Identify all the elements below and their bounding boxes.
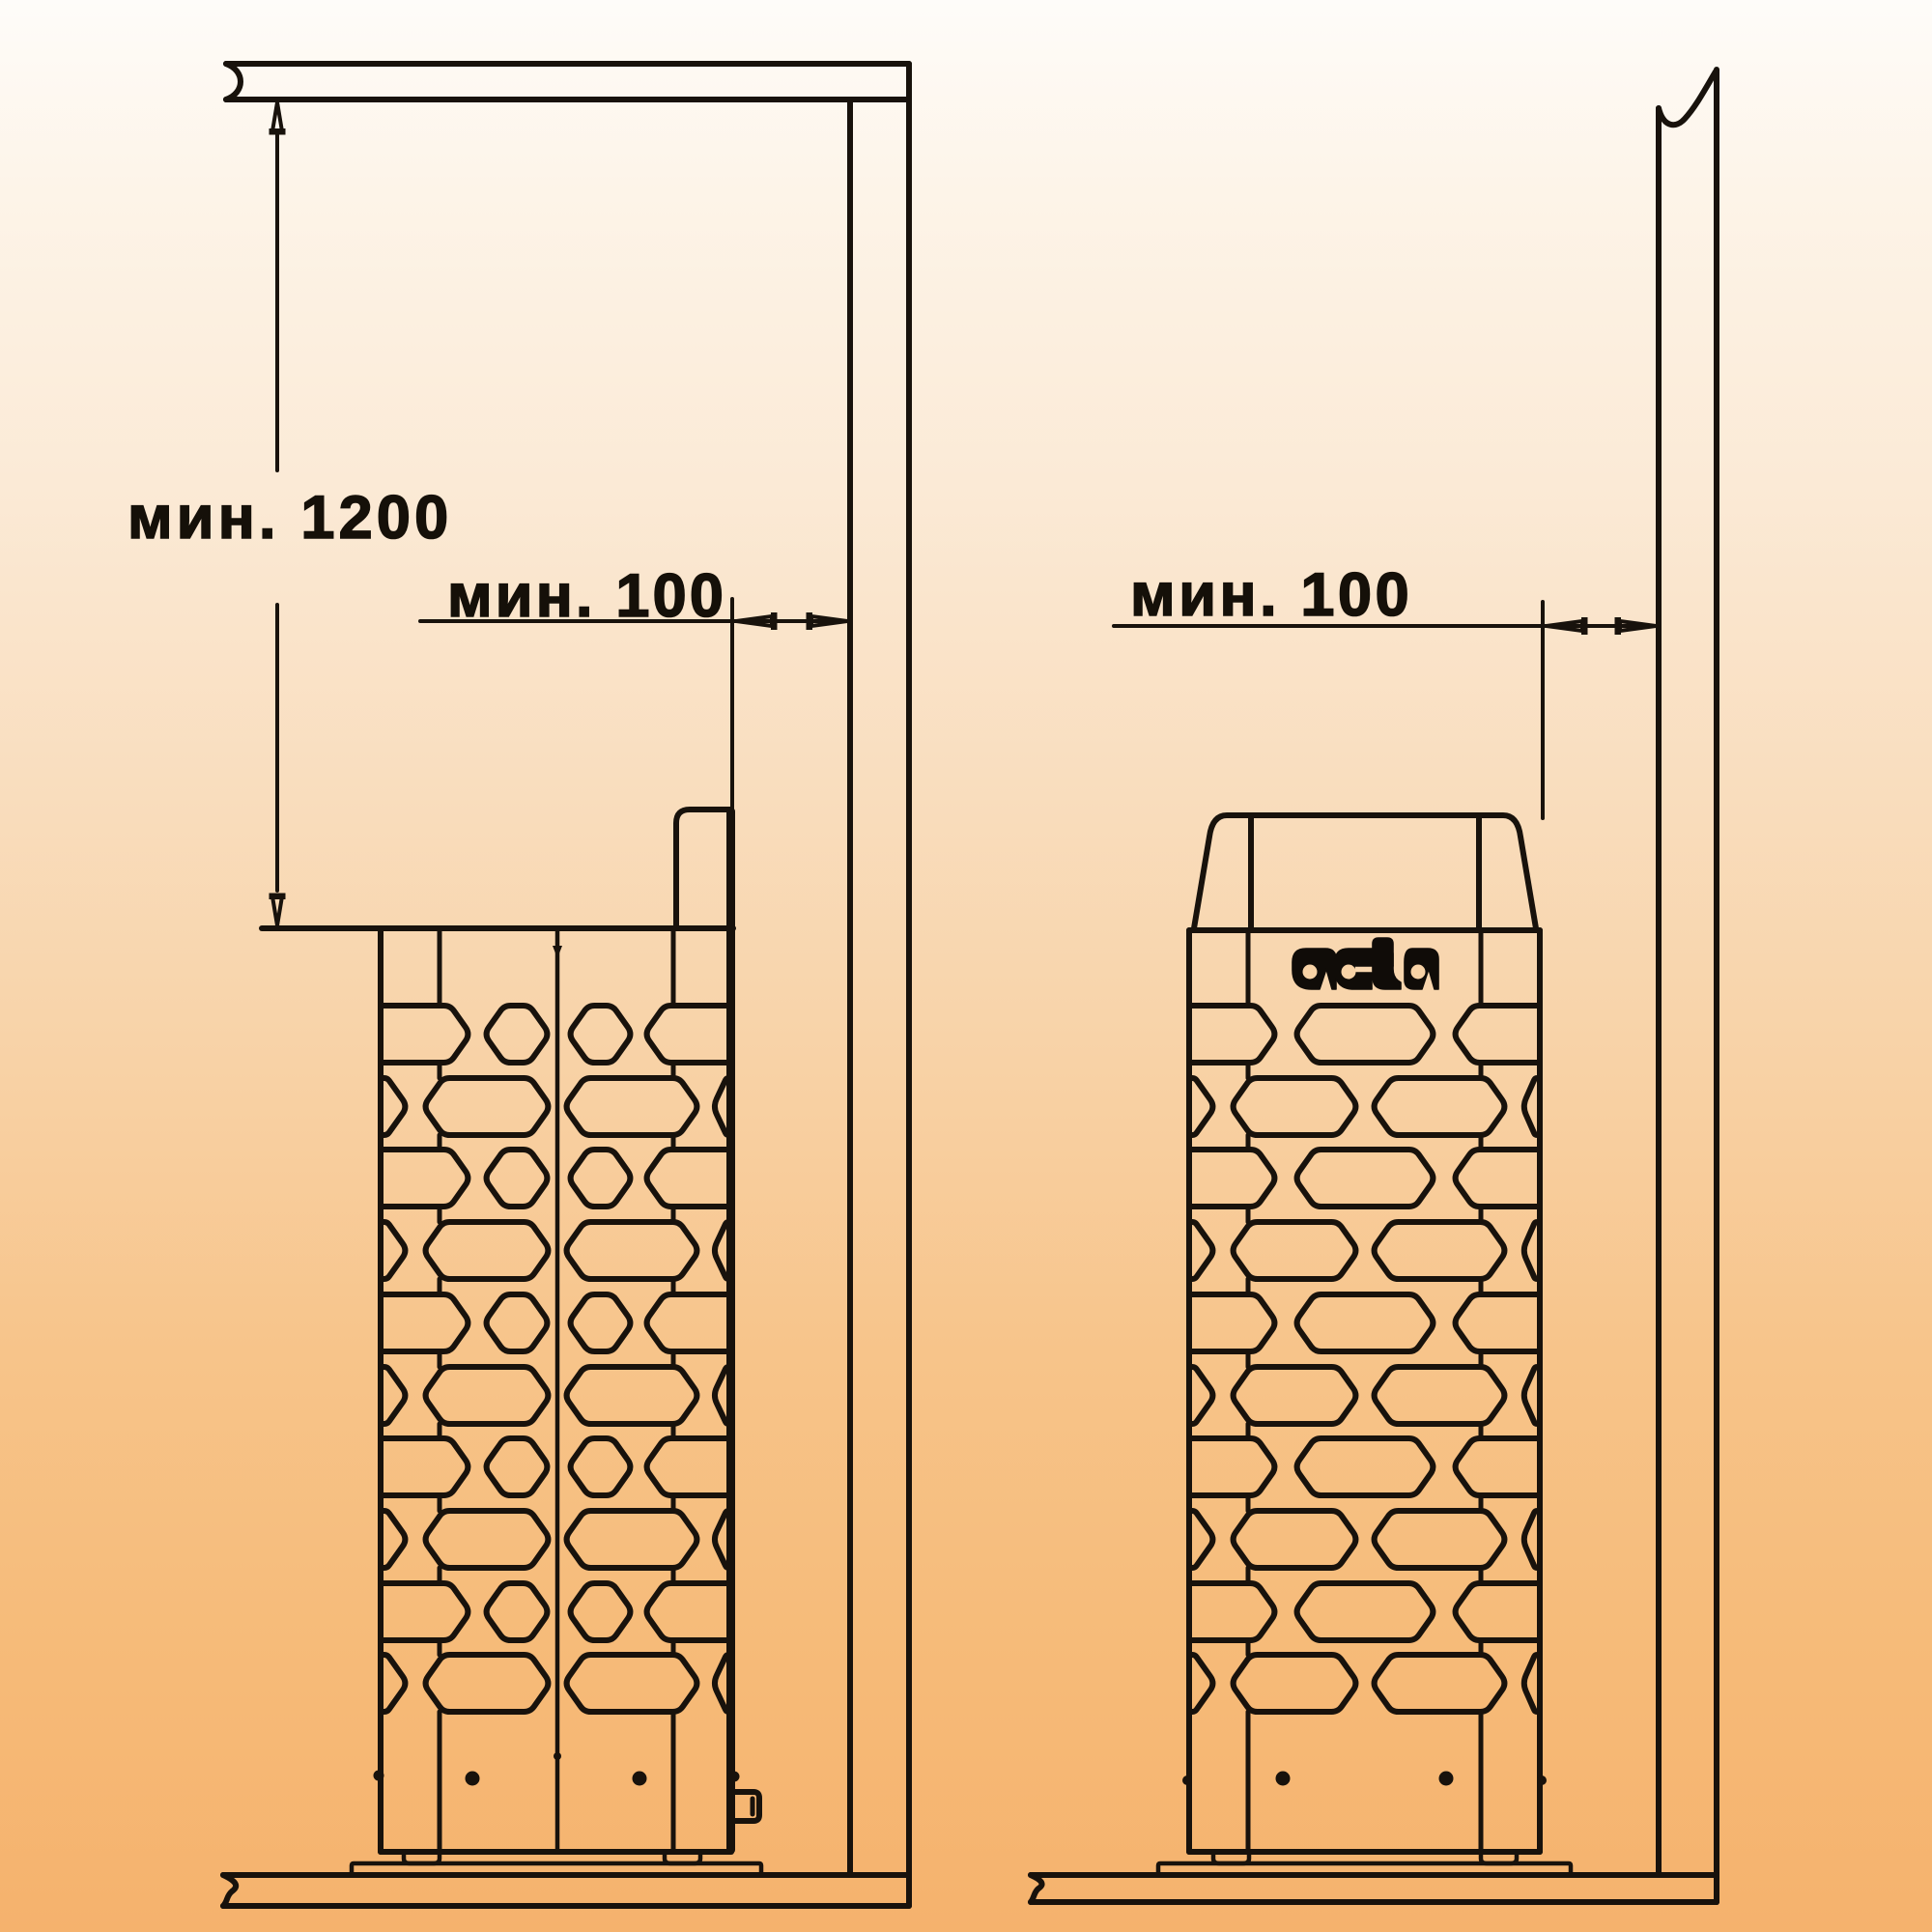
svg-text:мин. 100: мин. 100: [447, 562, 726, 630]
svg-text:мин. 100: мин. 100: [1130, 561, 1412, 629]
svg-text:мин. 1200: мин. 1200: [128, 484, 452, 552]
